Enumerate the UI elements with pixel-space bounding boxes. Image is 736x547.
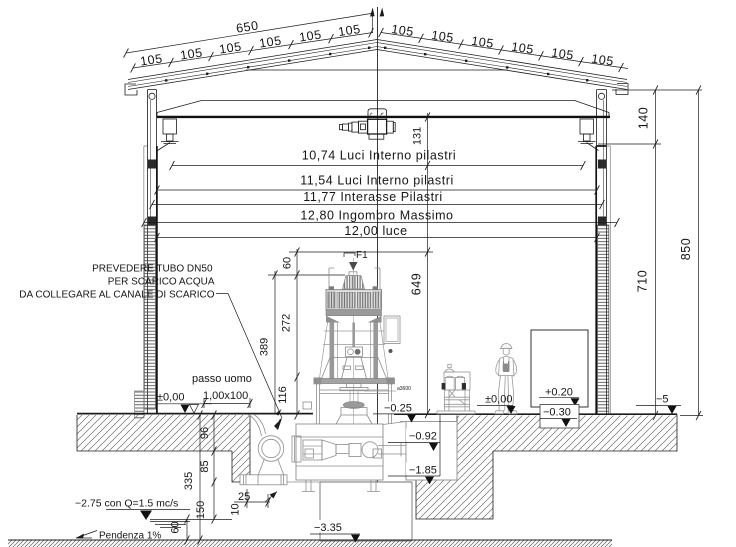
svg-text:±0,00: ±0,00 <box>157 392 184 404</box>
svg-text:85: 85 <box>199 460 211 472</box>
svg-text:F1: F1 <box>356 250 368 261</box>
svg-text:11,54 Luci Interno pilastri: 11,54 Luci Interno pilastri <box>300 174 454 188</box>
svg-text:10: 10 <box>230 503 242 515</box>
svg-text:649: 649 <box>410 273 424 296</box>
svg-text:850: 850 <box>679 238 693 261</box>
svg-text:10,74 Luci Interno pilastri: 10,74 Luci Interno pilastri <box>302 149 457 163</box>
svg-text:272: 272 <box>281 314 293 332</box>
svg-text:PER SCARICO ACQUA: PER SCARICO ACQUA <box>108 277 215 288</box>
svg-text:±0,00: ±0,00 <box>485 394 512 406</box>
svg-text:116: 116 <box>277 386 289 404</box>
svg-text:1,00x100: 1,00x100 <box>203 390 248 402</box>
svg-text:−0.92: −0.92 <box>409 431 437 443</box>
svg-text:710: 710 <box>636 270 650 293</box>
svg-text:passo uomo: passo uomo <box>192 373 252 385</box>
svg-text:−2.75 con Q=1.5 mc/s: −2.75 con Q=1.5 mc/s <box>75 498 178 510</box>
svg-text:DA COLLEGARE AL CANALE DI: DA COLLEGARE AL CANALE DI SCARICO <box>19 290 214 301</box>
svg-text:335: 335 <box>183 472 195 490</box>
svg-text:150: 150 <box>195 501 207 519</box>
svg-text:a3600: a3600 <box>397 386 411 392</box>
svg-text:−3.35: −3.35 <box>314 522 342 534</box>
svg-text:96: 96 <box>199 427 211 439</box>
svg-text:Pendenza 1%: Pendenza 1% <box>99 531 161 542</box>
svg-text:25: 25 <box>238 491 250 503</box>
svg-text:389: 389 <box>259 338 271 356</box>
svg-text:−1.85: −1.85 <box>409 465 437 477</box>
svg-text:131: 131 <box>412 127 424 145</box>
svg-text:−5: −5 <box>656 394 669 406</box>
svg-text:−0.25: −0.25 <box>384 403 412 415</box>
svg-text:−0.30: −0.30 <box>543 407 571 419</box>
svg-text:140: 140 <box>637 107 651 130</box>
svg-text:+0.20: +0.20 <box>545 387 573 399</box>
svg-text:60: 60 <box>282 257 294 269</box>
svg-text:PREVEDERE TUBO DN50: PREVEDERE TUBO DN50 <box>92 264 213 275</box>
svg-text:12,00 luce: 12,00 luce <box>344 224 407 238</box>
svg-text:12,80 Ingombro Massimo: 12,80 Ingombro Massimo <box>300 209 453 223</box>
svg-text:11,77 Interasse Pilastri: 11,77 Interasse Pilastri <box>303 190 442 204</box>
